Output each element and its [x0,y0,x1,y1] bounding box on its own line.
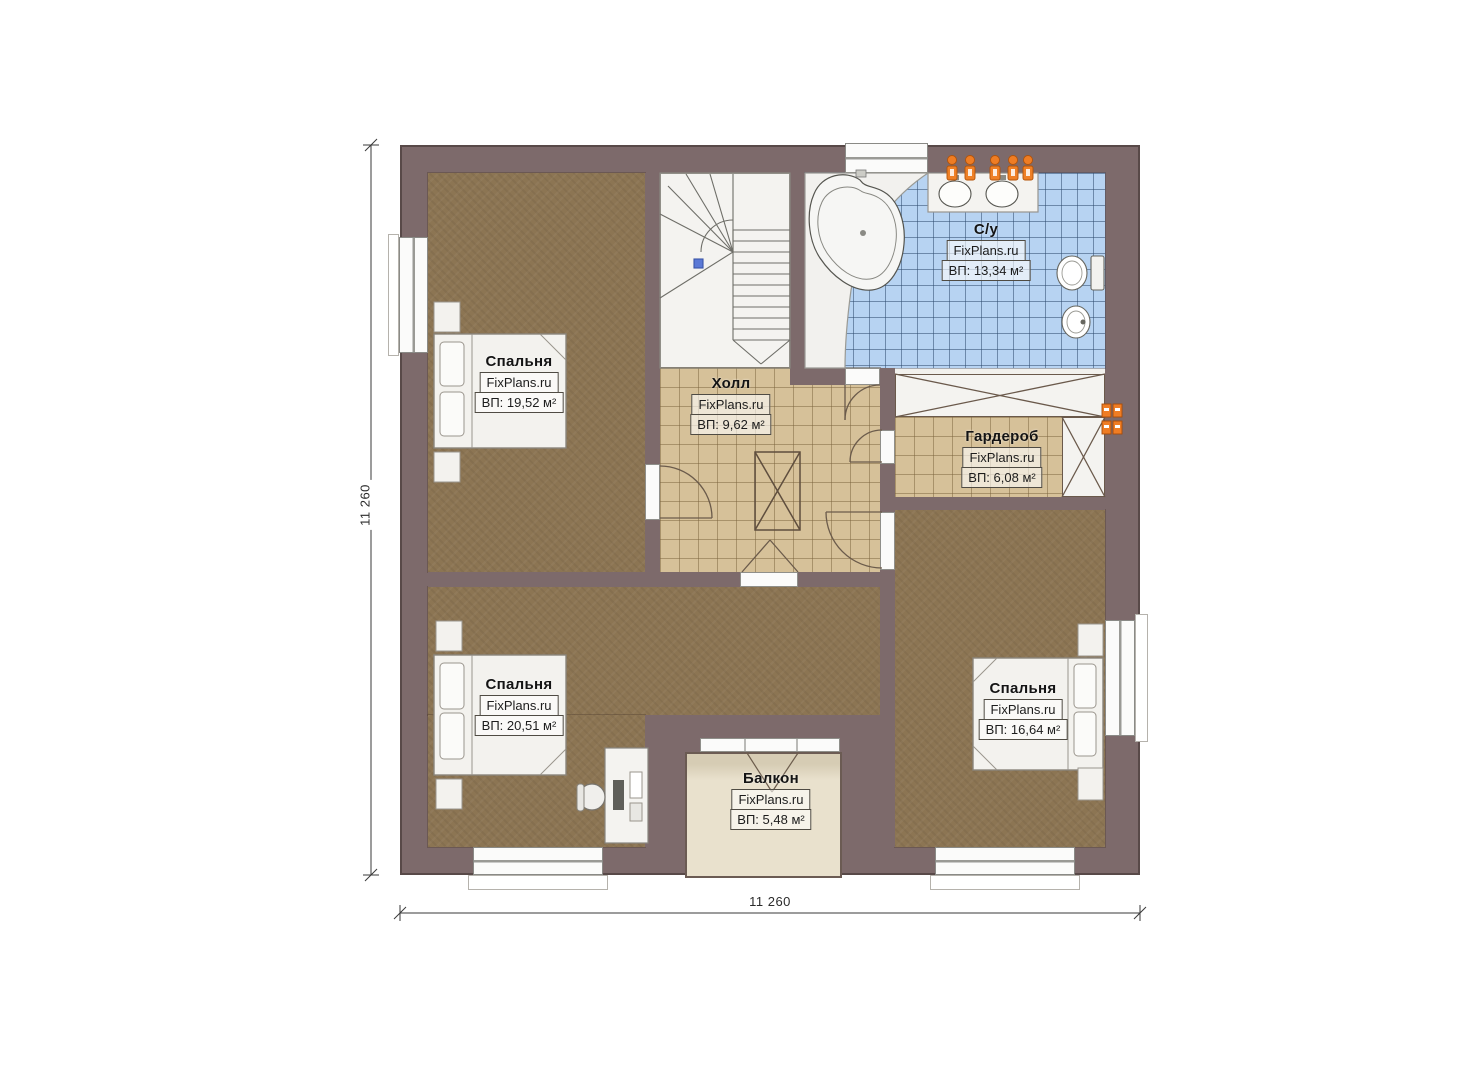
room-name: Спальня [486,676,553,693]
watermark: FixPlans.ru [731,789,810,810]
door-threshold-bedroom2 [740,572,798,587]
room-label-bedroom-top-left: Спальня FixPlans.ru ВП: 19,52 м² [475,353,564,413]
room-bedroom-bottom-right-floor [895,510,1105,847]
door-threshold-bedroom3 [880,512,895,570]
dimension-left: 11 260 [358,480,373,530]
door-threshold-balcony [700,738,840,752]
room-name: Балкон [743,770,799,787]
wall-balcony-left-column [645,715,685,847]
room-label-bedroom-bottom-left: Спальня FixPlans.ru ВП: 20,51 м² [475,676,564,736]
floor-plan-page: { "watermark": "FixPlans.ru", "rooms": [… [0,0,1474,1080]
room-area: ВП: 5,48 м² [730,809,811,830]
room-label-wardrobe: Гардероб FixPlans.ru ВП: 6,08 м² [961,428,1042,488]
watermark: FixPlans.ru [946,240,1025,261]
window-sill-right [1135,614,1148,742]
window-sill-bedroom2 [468,875,608,890]
watermark: FixPlans.ru [962,447,1041,468]
wall-wardrobe-bottom [895,497,1105,510]
window-bedroom2-bottom [473,847,603,875]
dimension-bottom: 11 260 [745,894,795,909]
room-area: ВП: 6,08 м² [961,467,1042,488]
wall-balcony-right-column [842,715,895,847]
window-sill-bedroom3 [930,875,1080,890]
watermark: FixPlans.ru [691,394,770,415]
watermark: FixPlans.ru [479,695,558,716]
closet-top [895,374,1105,417]
closet-right [1062,417,1105,497]
room-area: ВП: 13,34 м² [942,260,1031,281]
room-label-balcony: Балкон FixPlans.ru ВП: 5,48 м² [730,770,811,830]
staircase-area [660,173,790,368]
window-sill-left [388,234,399,356]
room-name: Холл [712,375,751,392]
window-bedroom3-bottom [935,847,1075,875]
room-name: Спальня [486,353,553,370]
room-name: Гардероб [965,428,1038,445]
room-area: ВП: 16,64 м² [979,719,1068,740]
room-label-bathroom: С/у FixPlans.ru ВП: 13,34 м² [942,221,1031,281]
door-threshold-bathroom [845,368,880,385]
room-name: Спальня [990,680,1057,697]
room-label-bedroom-bottom-right: Спальня FixPlans.ru ВП: 16,64 м² [979,680,1068,740]
window-bedroom3-right [1105,620,1135,736]
door-threshold-wardrobe [880,430,895,464]
room-name: С/у [974,221,998,238]
watermark: FixPlans.ru [983,699,1062,720]
wall-bedroom1-stairs [645,173,660,587]
door-threshold-bedroom1 [645,464,660,520]
wall-stairs-bathroom [790,173,805,385]
room-label-hall: Холл FixPlans.ru ВП: 9,62 м² [690,375,771,435]
room-area: ВП: 9,62 м² [690,414,771,435]
window-bathroom-top [845,143,928,173]
room-area: ВП: 19,52 м² [475,392,564,413]
room-area: ВП: 20,51 м² [475,715,564,736]
wall-horizontal-middle [428,572,895,587]
window-bedroom1-left [399,237,428,353]
watermark: FixPlans.ru [479,372,558,393]
